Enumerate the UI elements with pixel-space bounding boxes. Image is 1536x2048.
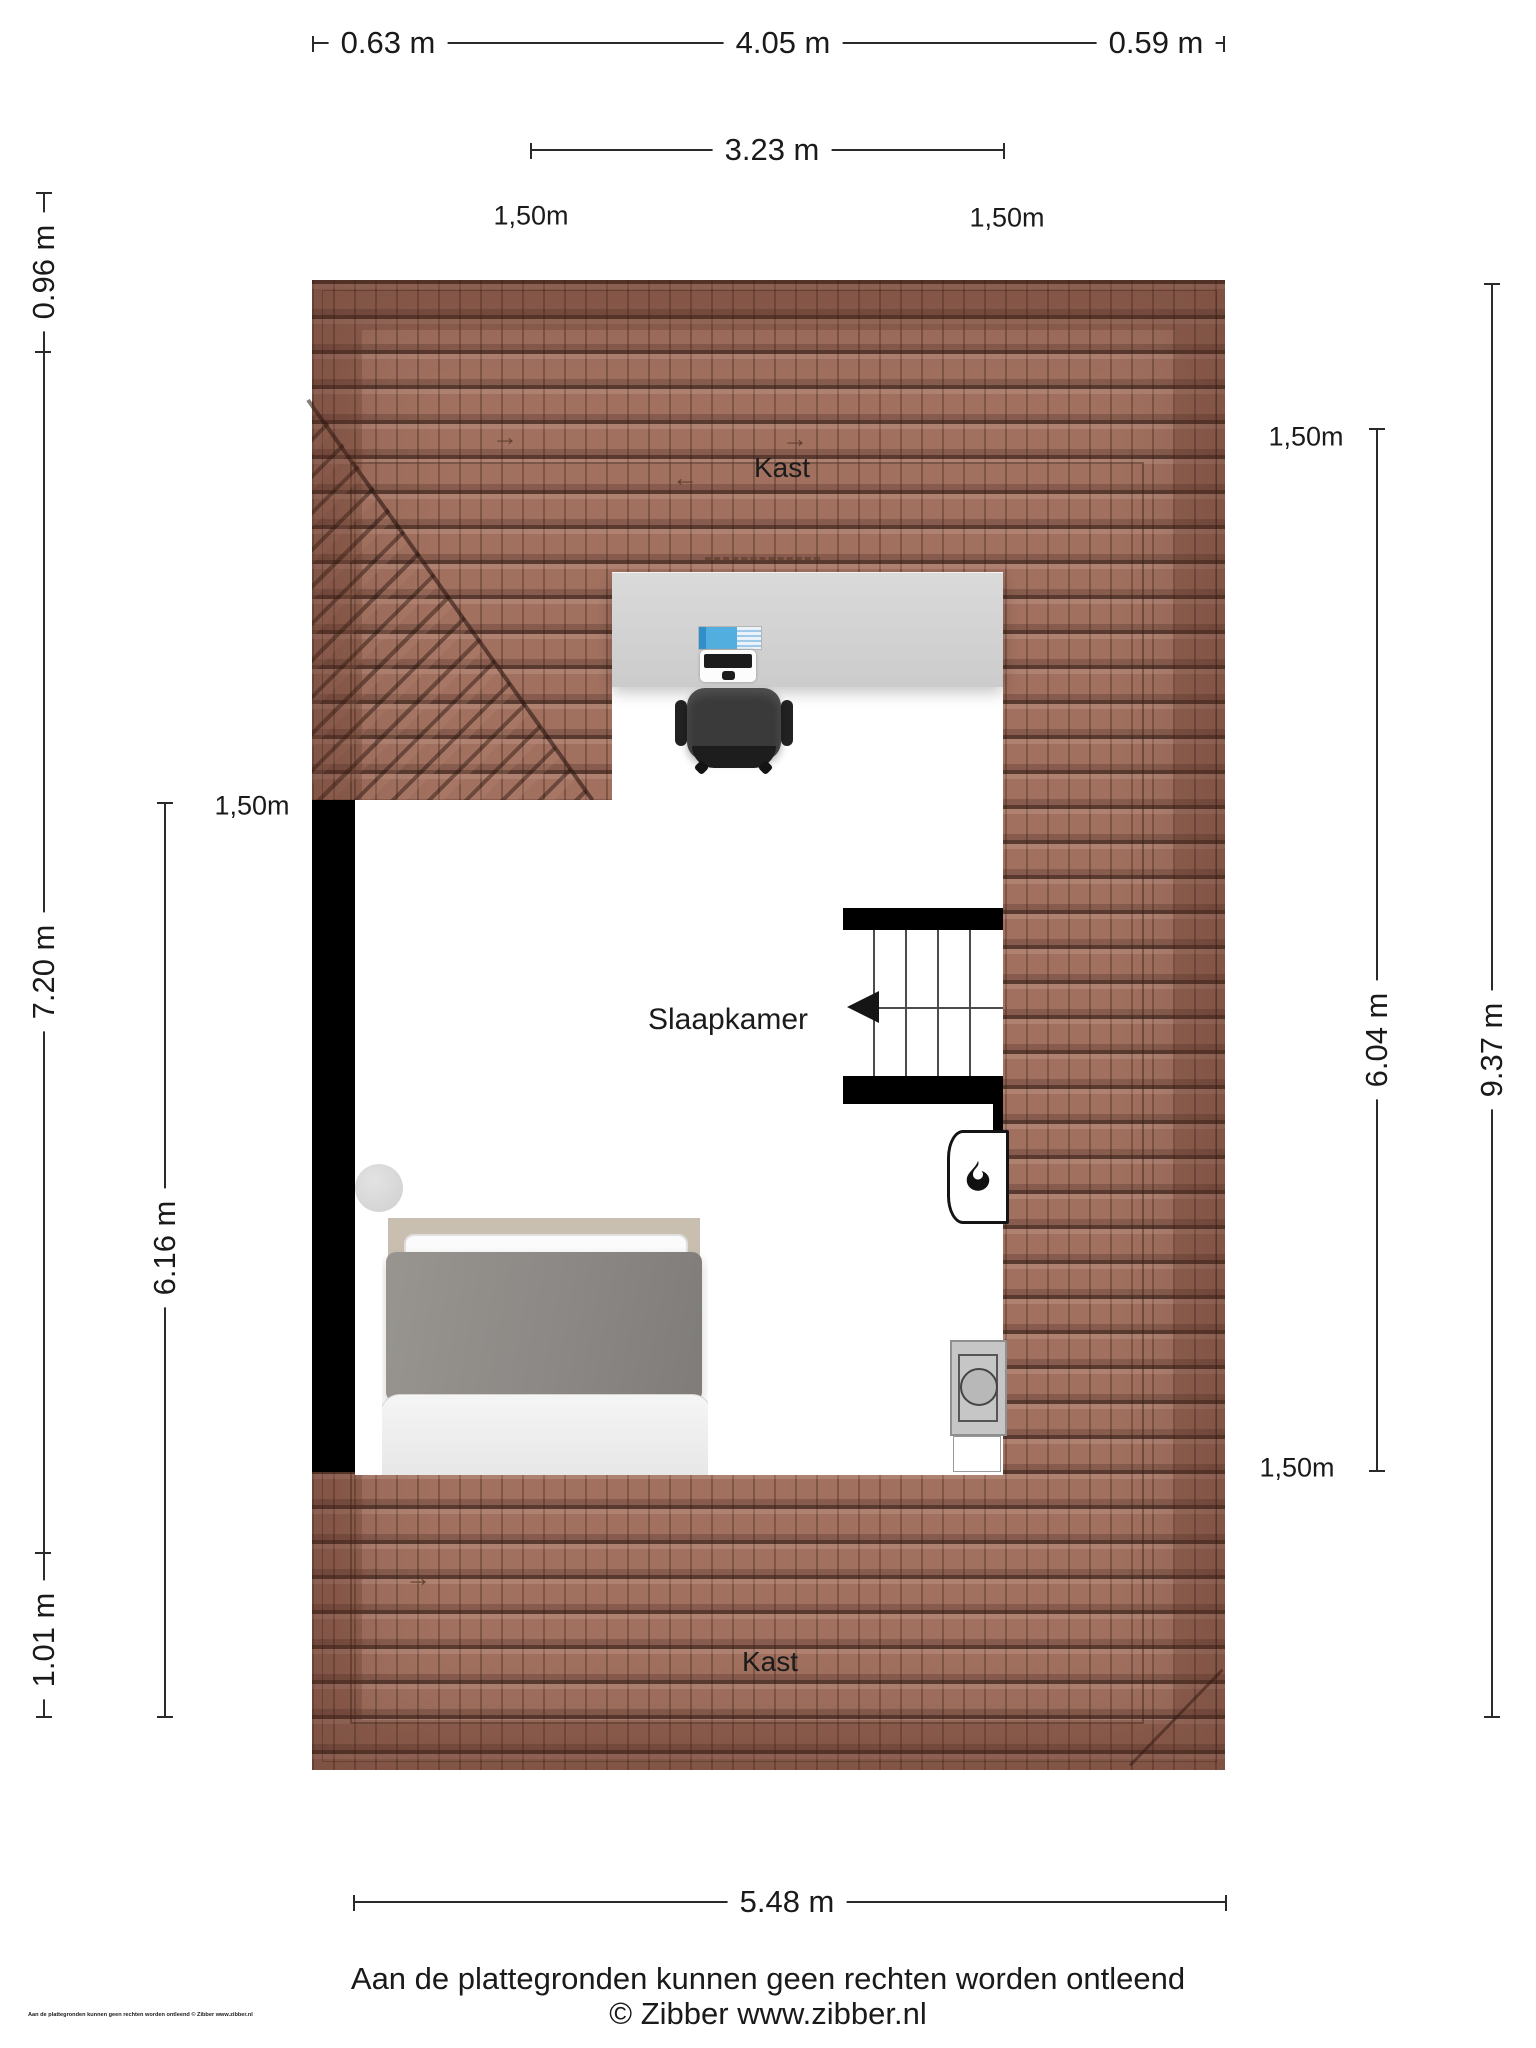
bed [382,1218,708,1475]
bed-blanket [386,1252,702,1402]
desk [612,573,1003,687]
dimension-label: 6.04 m [1359,981,1395,1100]
height-marker: 1,50m [1259,1453,1334,1484]
dimension-label: 4.05 m [724,25,843,61]
flame-icon [963,1159,993,1195]
computer-monitor-icon [698,626,762,650]
dimension-label: 7.20 m [26,913,62,1032]
room-label-closet-top: Kast [754,452,810,484]
monitor-screen [706,627,737,649]
floorplan-canvas: → → ← → Kast Kast Slaapkamer [0,0,1536,2048]
stair-tread [905,930,907,1076]
dimension-label: 0.96 m [26,213,62,332]
dimension-tick [35,1552,51,1554]
dimension-label: 3.23 m [713,132,832,168]
stair-direction-line [877,1007,1003,1009]
dimension-label: 6.16 m [147,1189,183,1308]
wall-stub [993,1104,1003,1132]
height-marker: 1,50m [493,201,568,232]
floor-lamp [355,1164,403,1212]
dimension-tick [35,351,51,353]
boiler-unit [947,1130,1009,1224]
dimension-label: 5.48 m [728,1884,847,1920]
mouse-icon [722,671,735,680]
disclaimer-text: Aan de plattegronden kunnen geen rechten… [0,1961,1536,1997]
washing-machine [950,1340,1007,1436]
dimension-label: 0.59 m [1097,25,1216,61]
roof-pitch-arrow-right-icon: → [405,1563,431,1594]
monitor-screen-content [737,627,761,649]
dimension-line-right-inner [1376,428,1378,1472]
keyboard-icon [704,654,752,668]
monitor-screen-edge [699,627,706,649]
roof-pitch-arrow-right-icon: → [782,424,808,455]
stair-tread [969,930,971,1076]
dimension-label: 0.63 m [329,25,448,61]
stair-wall-bottom [843,1076,1003,1104]
room-label-bedroom: Slaapkamer [648,1003,808,1037]
chair-armrest [781,700,793,746]
roof-dashed-line [705,557,820,560]
height-marker: 1,50m [1268,422,1343,453]
dimension-label: 9.37 m [1474,991,1510,1110]
corner-note-text: Aan de plattegronden kunnen geen rechten… [28,2012,253,2018]
roof-pitch-arrow-left-icon: ← [672,463,698,494]
room-label-closet-bottom: Kast [742,1646,798,1678]
roof-pitch-arrow-right-icon: → [492,422,518,453]
height-marker: 1,50m [214,791,289,822]
staircase [843,908,1003,1104]
stair-direction-arrow-icon [847,991,879,1023]
chair-armrest [675,700,687,746]
washer-door-icon [960,1368,998,1406]
bed-duvet [382,1394,708,1475]
interior-wall [312,800,355,1472]
stair-tread [937,930,939,1076]
small-cabinet [953,1436,1001,1472]
stair-wall-top [843,908,1003,930]
height-marker: 1,50m [969,203,1044,234]
dimension-label: 1.01 m [26,1581,62,1700]
